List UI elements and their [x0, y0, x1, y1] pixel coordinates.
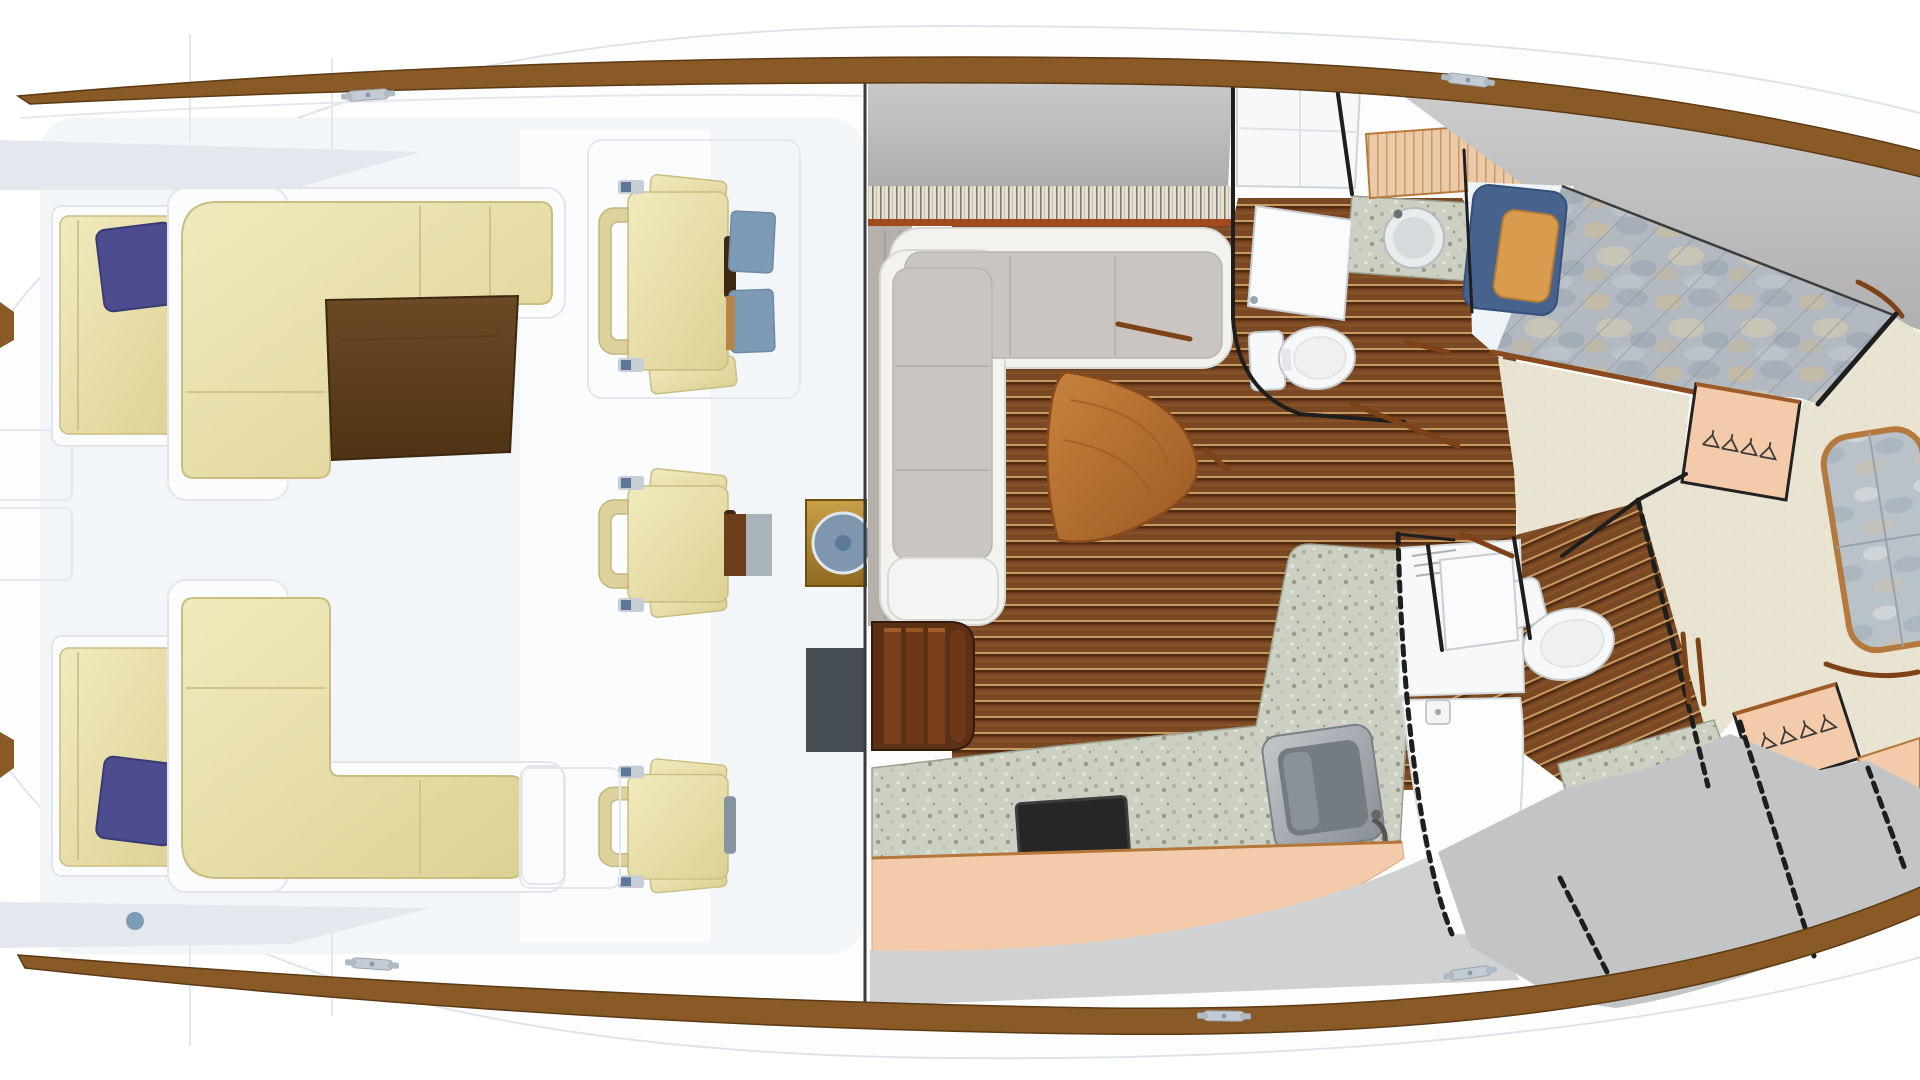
aft-head-vanity — [1237, 84, 1360, 188]
aft-deck-gray — [868, 80, 1233, 188]
cleat — [1197, 1011, 1251, 1022]
hanging-locker-stateroom — [1682, 384, 1800, 500]
aft-head-toilet — [1248, 325, 1356, 392]
cockpit-settee-forward — [168, 188, 565, 500]
settee-end-cabinet — [888, 558, 998, 620]
aft-head-door — [1248, 206, 1352, 320]
settee-armrest — [522, 766, 564, 884]
engine-hatch-panel — [806, 648, 864, 752]
boat-floorplan — [0, 0, 1920, 1080]
footrest-pad — [729, 289, 775, 352]
helm-console — [806, 500, 873, 586]
rail-sliver-port — [0, 302, 14, 348]
floorplan-canvas — [0, 0, 1920, 1080]
footrest-pad — [728, 211, 775, 273]
settee-cushion-side — [893, 268, 992, 560]
faucet-icon — [1394, 210, 1403, 219]
footrest-trim — [726, 296, 735, 350]
woven-blind — [868, 186, 1232, 220]
blind-track-trim — [868, 219, 1232, 226]
cockpit-table — [326, 296, 518, 460]
companionway-steps — [872, 622, 974, 750]
deck-light — [126, 912, 144, 930]
helm-side-console — [724, 514, 772, 576]
berth-pillow-tan — [1492, 209, 1560, 304]
door-hinge — [1250, 296, 1258, 304]
galley-sink — [1260, 723, 1386, 861]
